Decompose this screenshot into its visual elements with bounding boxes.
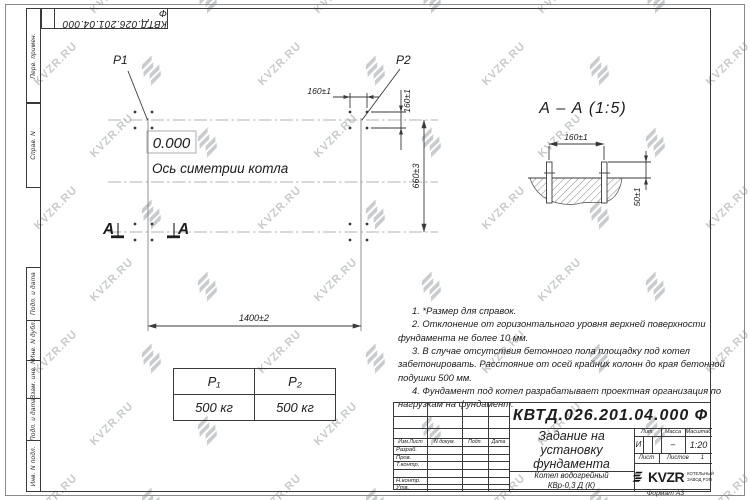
plan-dimension-lines bbox=[148, 90, 424, 326]
note-line: 3. В случае отсутствия бетонного пола пл… bbox=[398, 344, 728, 384]
note-line: 1. *Размер для справок. bbox=[398, 304, 728, 317]
concrete-hatch-area bbox=[530, 178, 622, 204]
anchor-bolt-points bbox=[134, 111, 369, 242]
tb-col-podp: Подп. bbox=[462, 438, 488, 446]
brand-subtitle: КОТЕЛЬНЫЙ ЗАВОД РЭП bbox=[687, 471, 714, 482]
load-table-header-p2: P₂ bbox=[255, 369, 336, 395]
tb-col-izm-list: Изм.Лист bbox=[394, 438, 427, 446]
tb-sheet-label: Лист bbox=[634, 453, 659, 463]
elevation-value: 0.000 bbox=[153, 135, 191, 152]
tb-row-blank bbox=[394, 469, 427, 477]
note-line: 2. Отклонение от горизонтального уровня … bbox=[398, 317, 728, 344]
tb-col-n-dokum: N докум. bbox=[427, 438, 462, 446]
dim-bolt-h-label: 160±1 bbox=[307, 86, 331, 96]
section-dim-spacing-label: 160±1 bbox=[564, 132, 588, 142]
load-table-value-p2: 500 кг bbox=[255, 395, 336, 421]
tb-product-name: Котел водогрейный КВр-0,3 Д (К) bbox=[509, 471, 634, 491]
tb-scale-header: Масштаб bbox=[685, 428, 712, 436]
p1-point-label: P1 bbox=[113, 53, 128, 67]
tb-doc-title: Задание на установку фундамента bbox=[509, 428, 634, 471]
load-table-value-p1: 500 кг bbox=[174, 395, 255, 421]
dim-bolt-v-label: 160±1 bbox=[402, 89, 412, 113]
drawing-sheet: KVZR.RUKVZR.RUKVZR.RUKVZR.RUKVZR.RUKVZR.… bbox=[0, 0, 750, 500]
brand-name: KVZR bbox=[648, 469, 684, 485]
tb-lit-value: И bbox=[634, 436, 643, 453]
tb-sheets-value: 1 bbox=[701, 455, 704, 461]
tb-lit-header: Лит. bbox=[634, 428, 661, 436]
plan-dimension-arrows bbox=[344, 95, 404, 135]
tb-sheets-cell: Листов 1 bbox=[659, 453, 712, 463]
dim-height-label: 660±3 bbox=[411, 164, 421, 189]
tb-row-nkontr: Н.контр. bbox=[394, 477, 427, 484]
section-view: А – А (1:5) 160±1 50±1 bbox=[528, 100, 651, 206]
tb-mass-header: Масса bbox=[661, 428, 685, 436]
tb-row-tkontr: Т.контр. bbox=[394, 461, 427, 469]
tb-row-prov: Пров. bbox=[394, 454, 427, 461]
tb-line bbox=[394, 416, 509, 417]
plan-view: P1 P2 0.000 Ось симетрии котла 1400±2 66… bbox=[102, 53, 438, 331]
tb-row-razrab: Разраб. bbox=[394, 446, 427, 454]
notes-block: 1. *Размер для справок. 2. Отклонение от… bbox=[398, 304, 728, 411]
tb-designation: КВТД.026.201.04.000 Ф bbox=[509, 403, 712, 428]
tb-scale-value: 1:20 bbox=[685, 436, 712, 453]
title-block: КВТД.026.201.04.000 Ф Задание на установ… bbox=[393, 402, 711, 490]
load-table: P₁ P₂ 500 кг 500 кг bbox=[173, 368, 336, 421]
kvzr-logo-icon bbox=[632, 469, 645, 485]
tb-line bbox=[652, 436, 653, 453]
tb-sheets-label: Листов bbox=[667, 455, 689, 461]
tb-row-utv: Утв. bbox=[394, 484, 427, 491]
section-letter-right: A bbox=[177, 221, 189, 238]
leader-lines bbox=[128, 69, 400, 120]
tb-col-data: Дата bbox=[488, 438, 509, 446]
tb-mass-value: – bbox=[661, 436, 685, 453]
format-label: Формат А3 bbox=[620, 490, 711, 497]
dim-width-label: 1400±2 bbox=[239, 313, 269, 323]
tb-line bbox=[643, 436, 644, 453]
section-title: А – А (1:5) bbox=[538, 100, 626, 117]
section-cut-marks bbox=[111, 223, 180, 237]
symmetry-axis-label: Ось симетрии котла bbox=[152, 161, 289, 176]
load-table-header-p1: P₁ bbox=[174, 369, 255, 395]
tb-logo-cell: KVZR КОТЕЛЬНЫЙ ЗАВОД РЭП bbox=[634, 463, 712, 491]
section-letter-left: A bbox=[102, 221, 114, 238]
p2-point-label: P2 bbox=[396, 53, 411, 67]
section-dim-height-label: 50±1 bbox=[632, 187, 642, 206]
